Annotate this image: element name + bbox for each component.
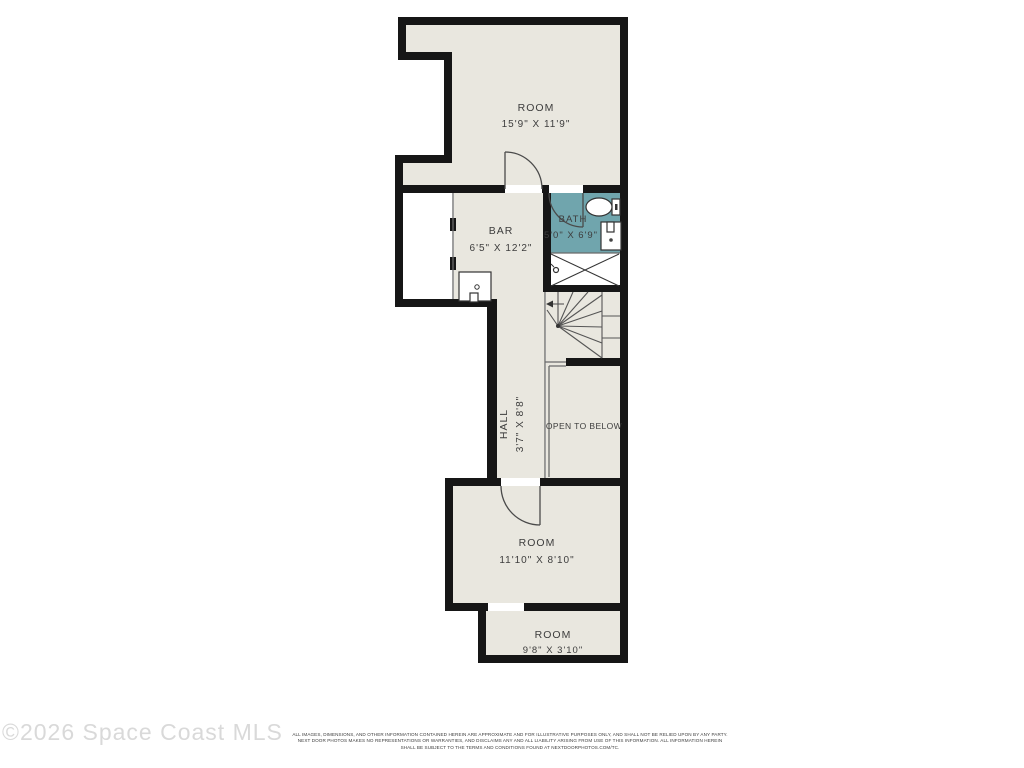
exterior-notch [395, 60, 444, 155]
wall-segment [445, 478, 501, 486]
wall-segment [478, 603, 486, 663]
bar-sink-faucet [470, 293, 478, 302]
door-opening [488, 603, 524, 611]
wall-segment [395, 155, 403, 307]
room-dims: 5'0" X 6'9" [544, 230, 598, 241]
room-label: HALL [498, 409, 510, 439]
disclaimer-line: SHALL BE SUBJECT TO THE TERMS AND CONDIT… [287, 745, 733, 751]
room-label: BATH [559, 214, 588, 225]
room-label: ROOM [519, 537, 556, 549]
room-dims: 3'7" X 8'8" [515, 396, 526, 452]
room-dims: 6'5" X 12'2" [470, 243, 533, 254]
wall-segment [444, 52, 452, 163]
room-dims: 11'10" X 8'10" [499, 555, 574, 566]
stair-newel-dot [556, 324, 560, 328]
wall-segment [395, 155, 452, 163]
door-opening [505, 185, 542, 193]
disclaimer: ALL IMAGES, DIMENSIONS, AND OTHER INFORM… [287, 732, 733, 751]
wall-segment [403, 185, 505, 193]
toilet-flush [615, 204, 618, 210]
shower-head-icon [554, 268, 559, 273]
floor-plan-page: ROOM 15'9" X 11'9" BAR 6'5" X 12'2" BATH… [0, 0, 1024, 768]
disclaimer-line: NEXT DOOR PHOTOS MAKES NO REPRESENTATION… [287, 738, 733, 744]
door-opening [501, 478, 540, 486]
floor-stairs-open [546, 292, 620, 478]
floor-plan: ROOM 15'9" X 11'9" BAR 6'5" X 12'2" BATH… [0, 0, 1024, 768]
door-opening [549, 185, 583, 193]
bath-sink-drain [609, 238, 613, 242]
wall-segment [566, 358, 628, 366]
closet-void [403, 193, 452, 299]
room-label: ROOM [535, 629, 572, 641]
room-label: BAR [489, 225, 514, 237]
wall-segment [487, 299, 497, 480]
wall-segment [543, 285, 628, 292]
wall-segment [620, 17, 628, 663]
wall-segment [583, 185, 628, 193]
wall-segment [398, 52, 452, 60]
wall-segment [540, 478, 628, 486]
bath-sink-faucet [607, 222, 614, 232]
room-dims: 9'8" X 3'10" [523, 645, 583, 656]
wall-segment [445, 478, 453, 611]
room-label: OPEN TO BELOW [546, 421, 622, 431]
watermark: ©2026 Space Coast MLS [2, 719, 283, 746]
wall-segment [478, 655, 628, 663]
toilet-icon [586, 198, 612, 216]
wall-segment [398, 17, 628, 25]
room-label: ROOM [518, 102, 555, 114]
wall-segment [524, 603, 628, 611]
room-dims: 15'9" X 11'9" [502, 119, 571, 130]
